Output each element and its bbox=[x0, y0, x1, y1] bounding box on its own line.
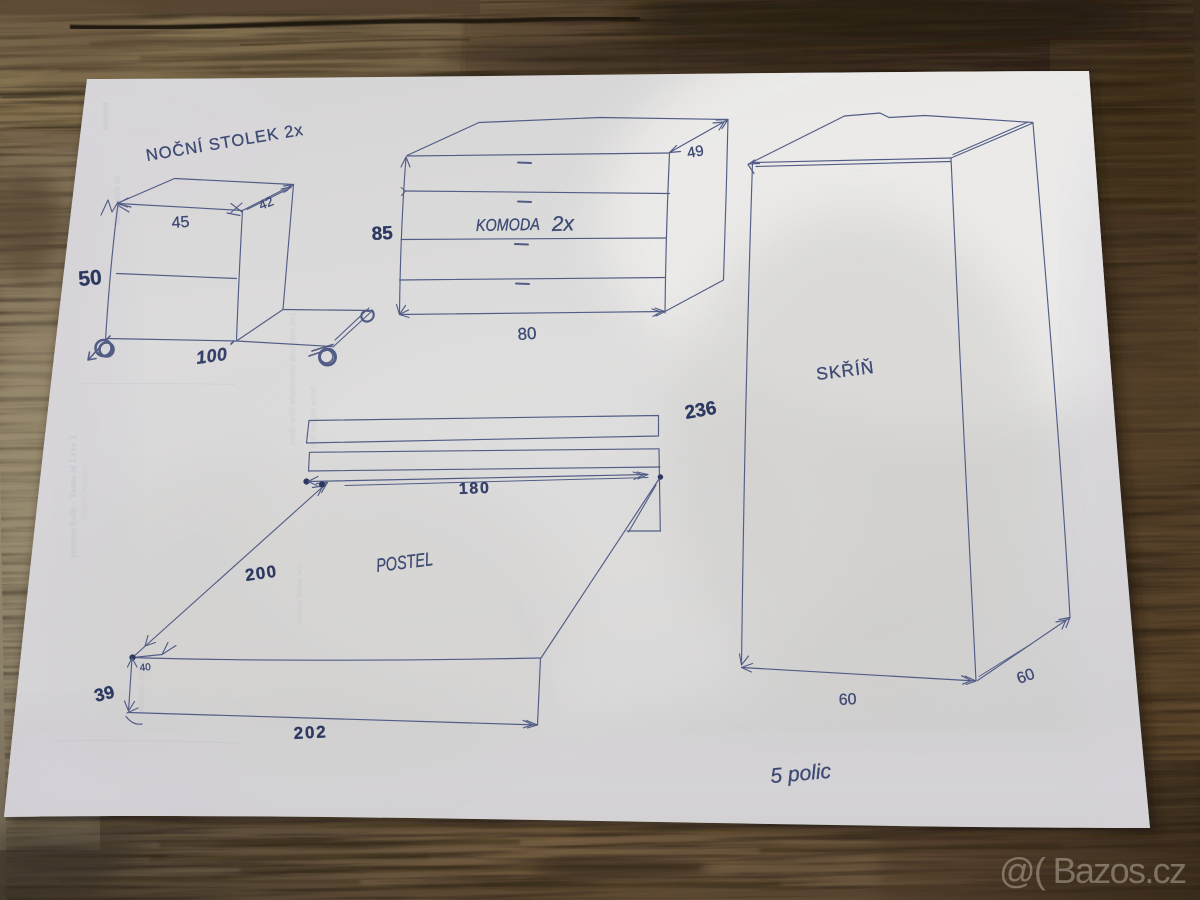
svg-text:85: 85 bbox=[371, 223, 394, 245]
svg-text:blend with vit: blend with vit bbox=[112, 175, 122, 225]
svg-text:50: 50 bbox=[77, 266, 102, 291]
svg-text:40: 40 bbox=[139, 662, 151, 674]
svg-text:ymmon Rolls - Tastes of Lxxy T: ymmon Rolls - Tastes of Lxxy T bbox=[68, 434, 79, 558]
svg-text:60: 60 bbox=[838, 691, 857, 709]
svg-text:2x: 2x bbox=[550, 212, 575, 236]
svg-text:made with wholesome goodness a: made with wholesome goodness and bbox=[287, 313, 297, 445]
svg-text:80: 80 bbox=[517, 324, 537, 344]
svg-text:202: 202 bbox=[293, 722, 326, 743]
svg-text:45: 45 bbox=[171, 214, 190, 232]
svg-text:180: 180 bbox=[459, 480, 490, 498]
svg-text:real simple wond: real simple wond bbox=[308, 386, 318, 448]
svg-text:100: 100 bbox=[195, 344, 228, 368]
svg-text:nutrient: nutrient bbox=[100, 102, 110, 130]
svg-text:49: 49 bbox=[686, 142, 705, 162]
svg-text:actawe home wh: actawe home wh bbox=[294, 564, 304, 625]
svg-text:KOMODA: KOMODA bbox=[476, 215, 540, 235]
svg-text:@( Bazos.cz: @( Bazos.cz bbox=[999, 850, 1187, 891]
svg-text:Algae Cinnamon: Algae Cinnamon bbox=[80, 466, 89, 520]
